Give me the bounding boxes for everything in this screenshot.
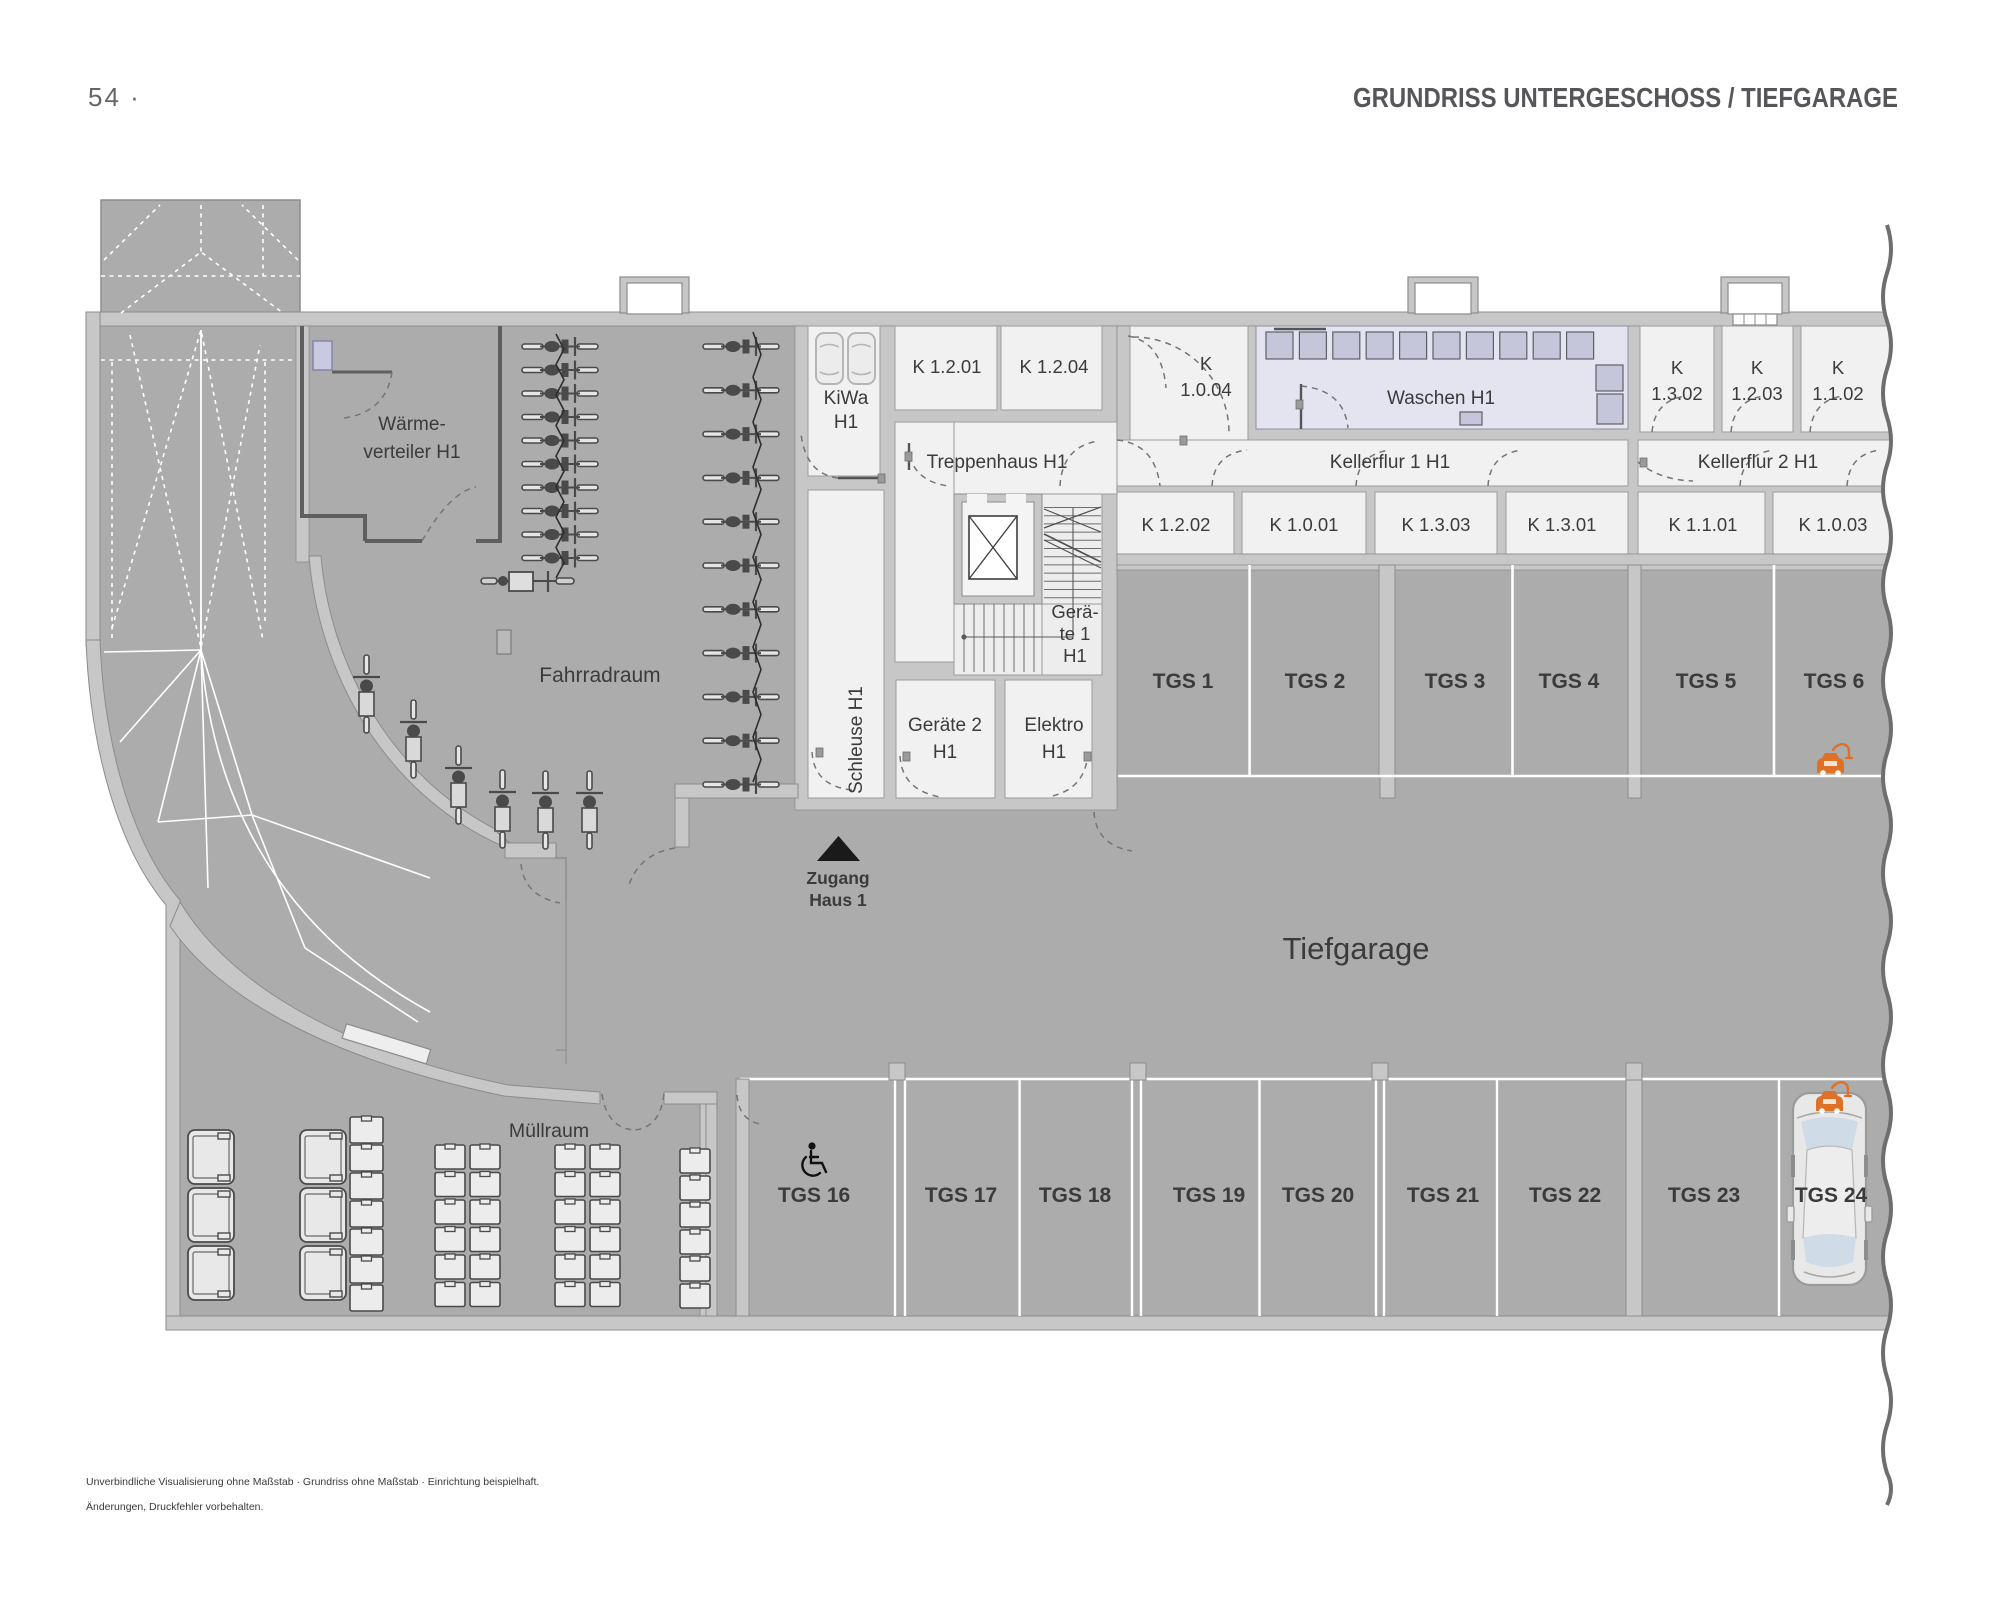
svg-text:TGS 3: TGS 3 [1425,670,1486,693]
svg-text:KiWa: KiWa [824,388,869,409]
svg-text:te 1: te 1 [1060,623,1091,644]
svg-text:TGS 24: TGS 24 [1795,1184,1868,1207]
svg-text:1.3.02: 1.3.02 [1651,383,1702,404]
svg-text:H1: H1 [1063,645,1087,666]
svg-text:Wärme-: Wärme- [378,414,446,435]
svg-text:Kellerflur 1 H1: Kellerflur 1 H1 [1330,452,1450,473]
svg-text:verteiler H1: verteiler H1 [363,442,460,463]
svg-text:Waschen H1: Waschen H1 [1387,388,1495,409]
svg-text:H1: H1 [933,742,957,763]
svg-text:TGS 1: TGS 1 [1153,670,1214,693]
svg-text:Unverbindliche Visualisierung: Unverbindliche Visualisierung ohne Maßst… [86,1476,539,1488]
svg-text:TGS 17: TGS 17 [925,1184,997,1207]
svg-text:TGS 20: TGS 20 [1282,1184,1354,1207]
svg-text:K: K [1671,357,1684,378]
svg-text:TGS 19: TGS 19 [1173,1184,1245,1207]
svg-text:TGS 21: TGS 21 [1407,1184,1480,1207]
svg-text:1.0.04: 1.0.04 [1180,379,1231,400]
svg-text:K 1.0.03: K 1.0.03 [1799,514,1868,535]
svg-text:GRUNDRISS UNTERGESCHOSS / TIEF: GRUNDRISS UNTERGESCHOSS / TIEFGARAGE [1353,82,1898,113]
svg-text:Geräte 2: Geräte 2 [908,715,982,736]
svg-text:TGS 4: TGS 4 [1539,670,1600,693]
svg-text:K 1.2.02: K 1.2.02 [1142,514,1211,535]
svg-text:K 1.0.01: K 1.0.01 [1270,514,1339,535]
svg-text:TGS 2: TGS 2 [1285,670,1346,693]
svg-text:K: K [1751,357,1764,378]
svg-text:H1: H1 [1042,742,1066,763]
svg-text:Tiefgarage: Tiefgarage [1282,931,1429,966]
svg-text:Kellerflur 2 H1: Kellerflur 2 H1 [1698,452,1818,473]
svg-text:K 1.3.03: K 1.3.03 [1402,514,1471,535]
svg-text:K 1.2.01: K 1.2.01 [913,356,982,377]
svg-text:Treppenhaus H1: Treppenhaus H1 [927,452,1068,473]
svg-text:Änderungen, Druckfehler vorbeh: Änderungen, Druckfehler vorbehalten. [86,1501,263,1513]
svg-text:K: K [1832,357,1845,378]
svg-text:Fahrradraum: Fahrradraum [539,664,660,687]
svg-text:TGS 22: TGS 22 [1529,1184,1601,1207]
svg-text:1.2.03: 1.2.03 [1731,383,1782,404]
svg-text:TGS 16: TGS 16 [778,1184,850,1207]
svg-text:TGS 5: TGS 5 [1676,670,1737,693]
svg-text:TGS 6: TGS 6 [1804,670,1865,693]
svg-text:1.1.02: 1.1.02 [1812,383,1863,404]
svg-text:TGS 23: TGS 23 [1668,1184,1740,1207]
svg-text:54 ·: 54 · [88,82,141,112]
svg-text:Elektro: Elektro [1024,715,1083,736]
svg-text:Haus 1: Haus 1 [809,890,867,910]
svg-text:K 1.2.04: K 1.2.04 [1020,356,1089,377]
svg-text:Gerä-: Gerä- [1051,601,1098,622]
svg-text:Zugang: Zugang [806,868,869,888]
svg-text:Müllraum: Müllraum [509,1120,589,1142]
svg-text:K 1.1.01: K 1.1.01 [1669,514,1738,535]
svg-text:Schleuse H1: Schleuse H1 [846,686,867,794]
svg-text:H1: H1 [834,412,858,433]
svg-text:K 1.3.01: K 1.3.01 [1528,514,1597,535]
svg-text:TGS 18: TGS 18 [1039,1184,1112,1207]
svg-text:K: K [1200,353,1213,374]
